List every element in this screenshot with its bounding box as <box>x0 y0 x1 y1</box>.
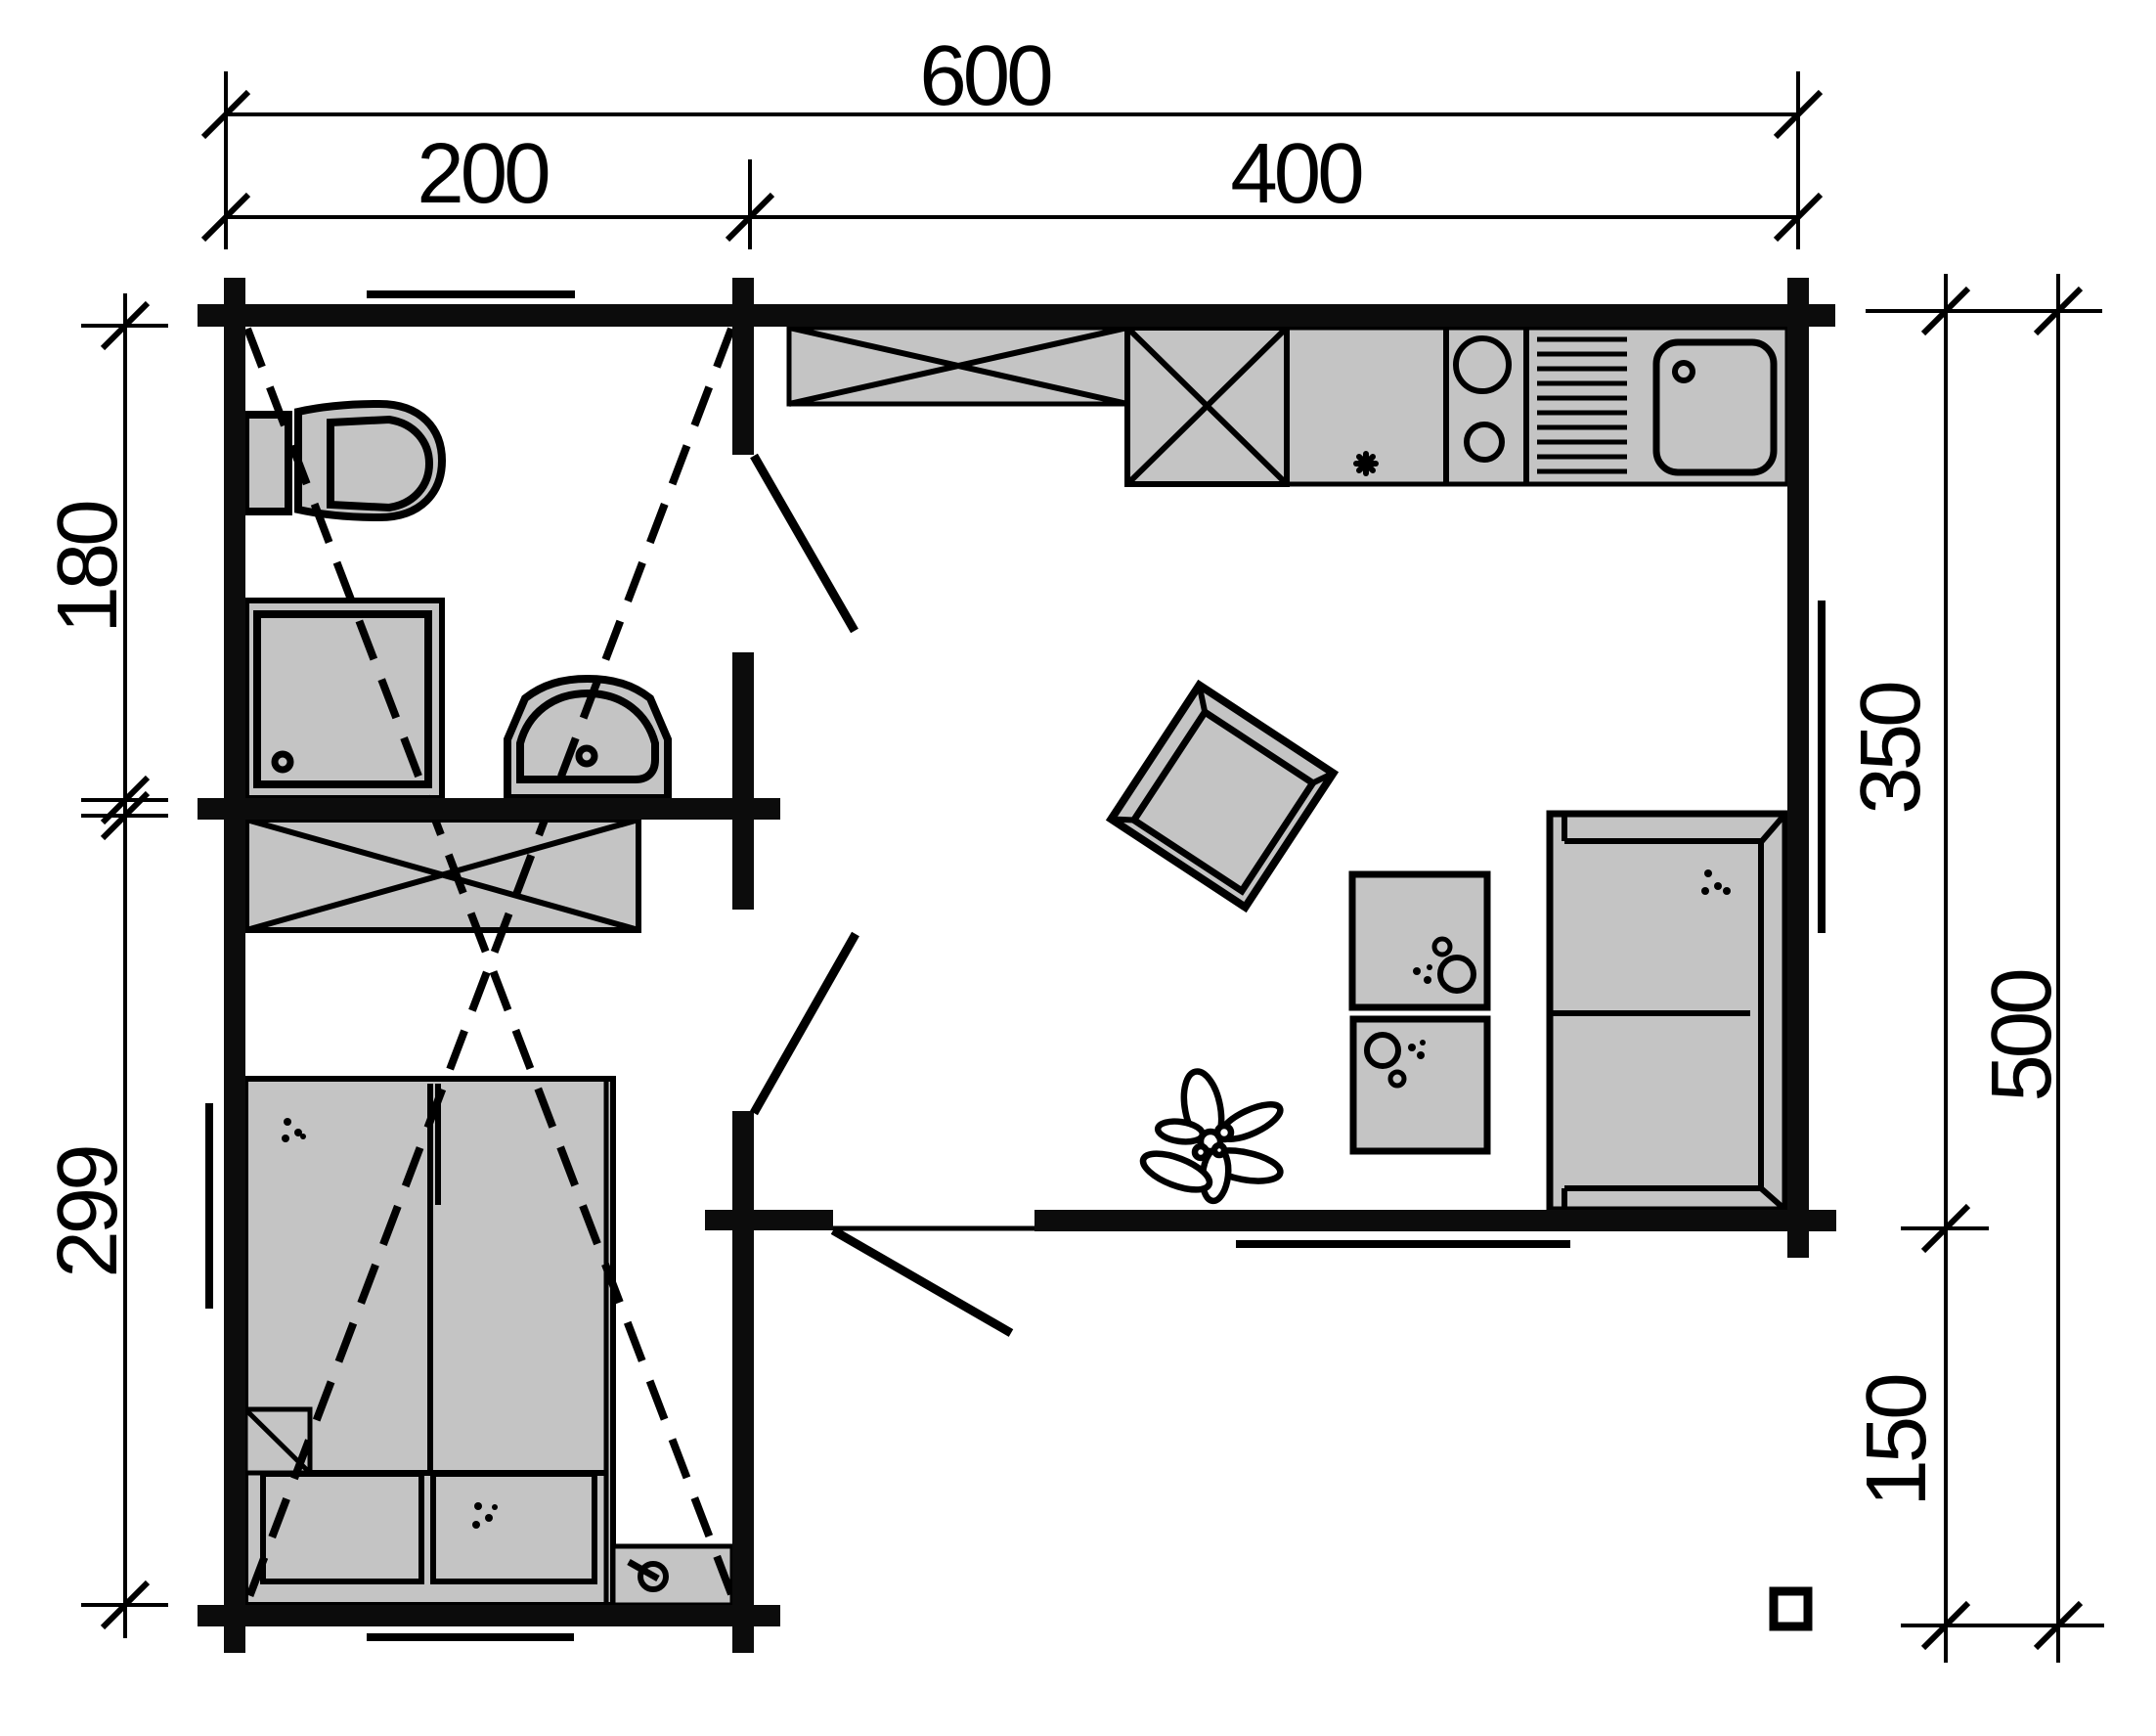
svg-text:350: 350 <box>1843 684 1938 815</box>
svg-text:150: 150 <box>1849 1376 1944 1507</box>
svg-text:500: 500 <box>1974 971 2069 1102</box>
svg-text:600: 600 <box>919 28 1050 123</box>
svg-text:400: 400 <box>1230 126 1361 221</box>
svg-text:200: 200 <box>417 126 548 221</box>
svg-text:299: 299 <box>40 1147 135 1278</box>
svg-text:180: 180 <box>40 503 135 634</box>
